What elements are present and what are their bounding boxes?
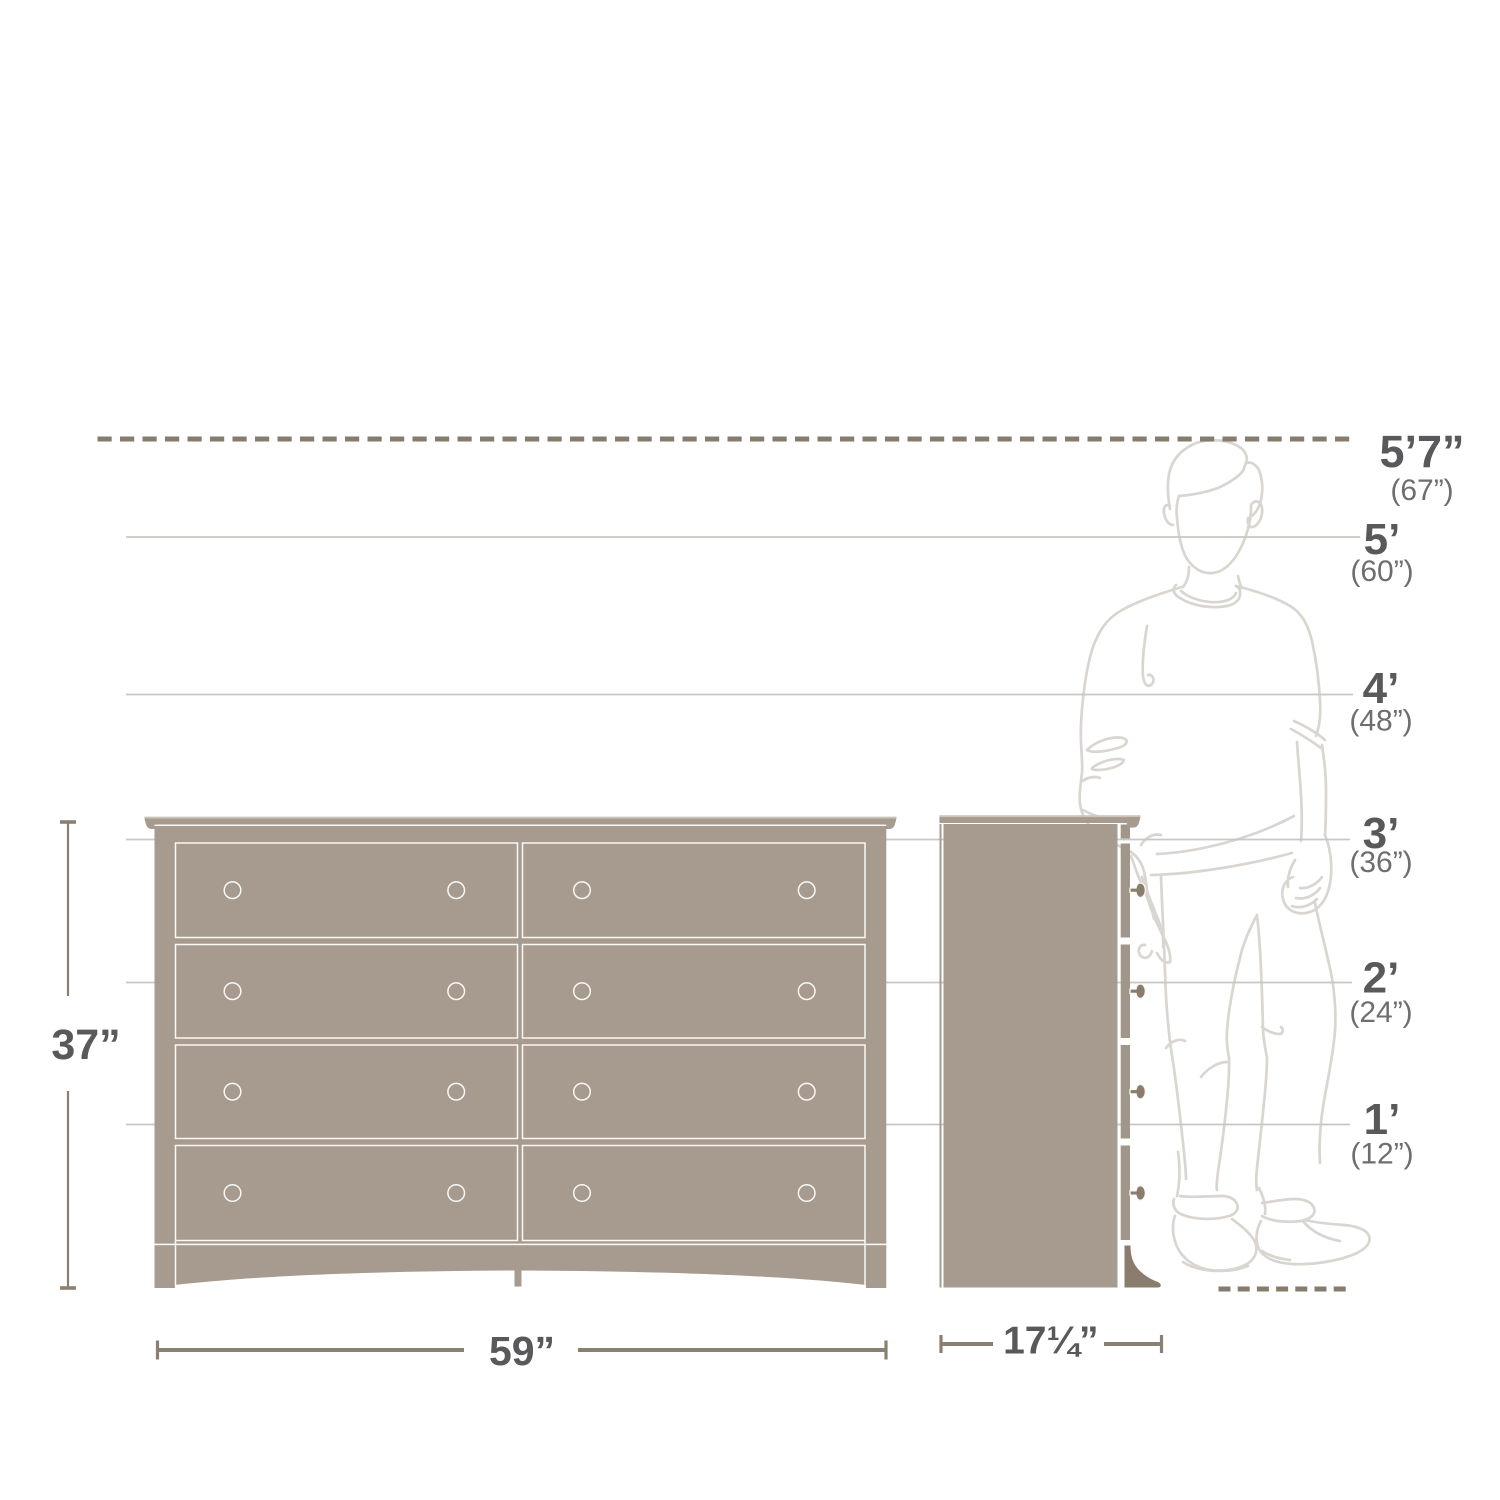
svg-text:(36”): (36”) [1349, 846, 1412, 879]
svg-text:17¼”: 17¼” [1003, 1320, 1098, 1363]
svg-text:59”: 59” [489, 1328, 555, 1374]
svg-text:(48”): (48”) [1349, 705, 1412, 738]
svg-text:37”: 37” [51, 1021, 120, 1069]
svg-text:(67”): (67”) [1390, 474, 1453, 507]
svg-text:5’7”: 5’7” [1379, 426, 1464, 477]
svg-text:(60”): (60”) [1350, 555, 1413, 588]
svg-text:(12”): (12”) [1350, 1138, 1413, 1171]
svg-text:(24”): (24”) [1349, 996, 1412, 1029]
